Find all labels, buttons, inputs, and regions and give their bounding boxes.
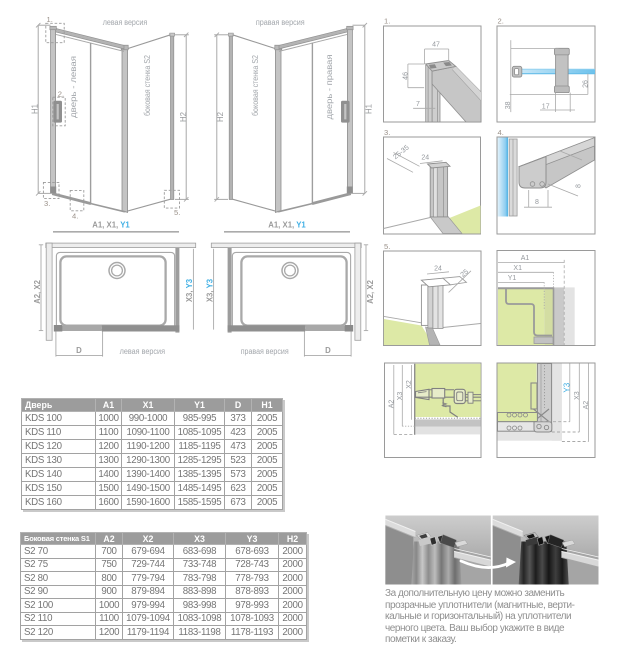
svg-text:X3, Y3: X3, Y3 — [185, 278, 194, 302]
svg-text:4.: 4. — [72, 212, 78, 221]
svg-text:24: 24 — [434, 266, 442, 273]
svg-text:X2: X2 — [406, 380, 413, 389]
svg-text:2.: 2. — [58, 90, 64, 99]
svg-text:H2: H2 — [216, 112, 225, 122]
svg-text:H1: H1 — [31, 104, 40, 114]
svg-text:H2: H2 — [179, 112, 188, 122]
svg-text:D: D — [325, 346, 331, 355]
svg-text:A2, X2: A2, X2 — [33, 279, 42, 303]
svg-text:боковая стенка S2: боковая стенка S2 — [143, 55, 152, 116]
svg-text:правая версия: правая версия — [241, 347, 289, 356]
svg-text:дверь - правая: дверь - правая — [325, 55, 334, 120]
svg-text:17: 17 — [542, 104, 550, 111]
svg-text:A2, X2: A2, X2 — [366, 279, 375, 303]
svg-text:D: D — [76, 346, 82, 355]
svg-text:A1: A1 — [521, 255, 530, 262]
svg-text:1.: 1. — [47, 15, 53, 24]
svg-text:Y1: Y1 — [508, 275, 517, 282]
svg-text:X1: X1 — [513, 265, 522, 272]
svg-text:47: 47 — [432, 42, 440, 49]
svg-text:8: 8 — [576, 184, 583, 188]
svg-text:1.: 1. — [384, 17, 390, 26]
svg-text:Y3: Y3 — [562, 382, 571, 392]
svg-text:38: 38 — [505, 101, 512, 109]
svg-text:3.: 3. — [44, 199, 50, 208]
svg-text:5.: 5. — [174, 208, 180, 217]
svg-text:A1, X1, Y1: A1, X1, Y1 — [268, 221, 306, 230]
svg-text:X3: X3 — [574, 391, 581, 400]
svg-text:4.: 4. — [498, 128, 504, 137]
svg-text:26: 26 — [582, 80, 589, 88]
svg-text:левая версия: левая версия — [120, 347, 165, 356]
svg-text:дверь - левая: дверь - левая — [69, 56, 78, 118]
svg-text:X3: X3 — [397, 392, 404, 401]
svg-text:8: 8 — [535, 199, 539, 206]
svg-text:5.: 5. — [384, 242, 390, 251]
svg-text:правая версия: правая версия — [256, 18, 305, 27]
svg-text:A2: A2 — [583, 401, 590, 410]
svg-text:3.: 3. — [384, 128, 390, 137]
svg-text:боковая стенка S2: боковая стенка S2 — [251, 55, 260, 116]
svg-text:2.: 2. — [498, 17, 504, 26]
svg-text:левая версия: левая версия — [103, 18, 148, 27]
svg-text:7: 7 — [416, 101, 420, 108]
svg-text:X3, Y3: X3, Y3 — [205, 278, 214, 302]
svg-text:A2: A2 — [388, 400, 395, 409]
svg-text:H1: H1 — [364, 104, 373, 114]
svg-text:24: 24 — [421, 155, 429, 162]
svg-text:46: 46 — [403, 72, 410, 80]
svg-text:A1, X1, Y1: A1, X1, Y1 — [92, 221, 130, 230]
